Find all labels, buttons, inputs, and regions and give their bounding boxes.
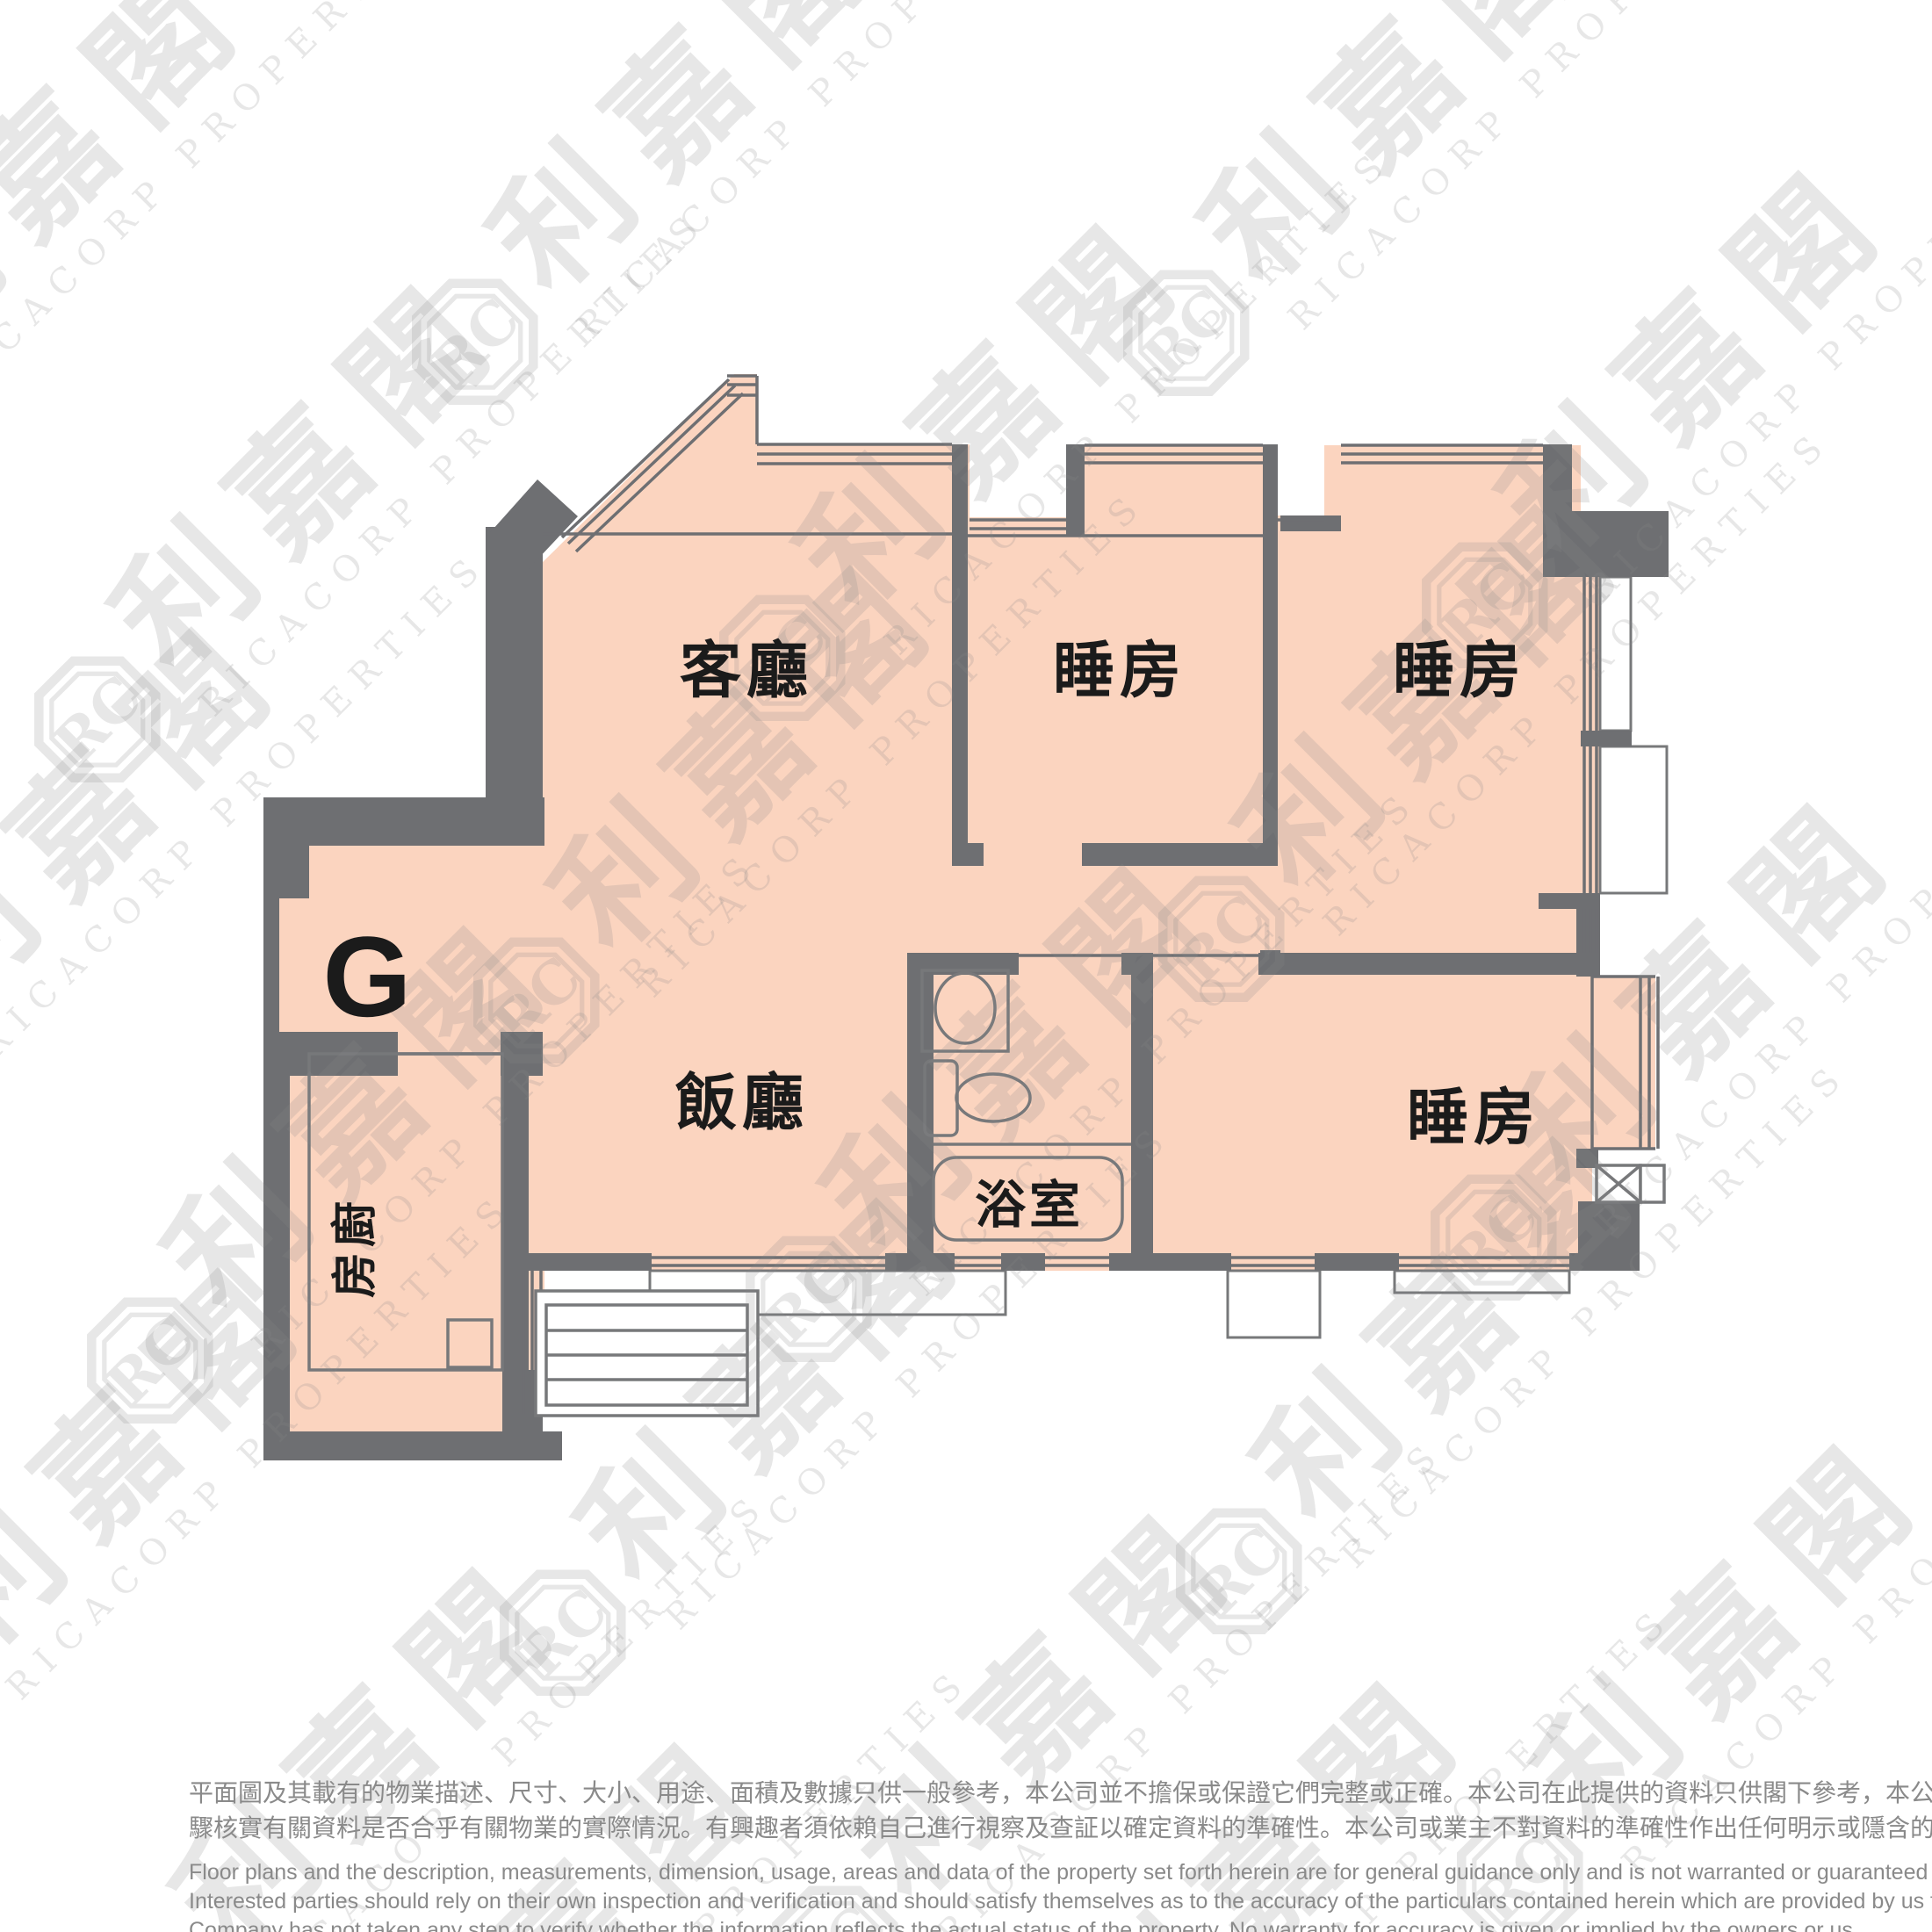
bedroom2-door-gap [1263,866,1278,950]
bed2-bed3-divider [1258,953,1581,975]
bathroom-top-cap [1121,953,1153,975]
hall-step-wall [263,797,544,846]
living-room-floor [543,374,952,866]
kitchen-top-wall-right [501,1032,543,1076]
bathroom-label: 浴室 [975,1164,1084,1237]
bed1-bed2-wall [1263,444,1278,866]
kitchen-floor [290,1054,502,1431]
bottom-window-2 [955,1253,1001,1271]
kitchen-label-char-1: 廚 [330,1201,381,1247]
ac-platform-1 [970,444,1066,517]
ac-crossbox-side [1640,1165,1664,1202]
bottom-window-1 [652,1253,885,1271]
kitchen-label: 廚 房 [333,1199,378,1301]
disclaimer-en-line3: Company has not taken any step to verify… [189,1916,1932,1932]
ac-gap1-stub [1066,444,1085,536]
disclaimer-zh-line1: 平面圖及其載有的物業描述、尺寸、大小、用途、面積及數據只供一般參考，本公司並不擔… [189,1776,1932,1811]
ledge-right-a [1600,577,1631,731]
disclaimer-block: 平面圖及其載有的物業描述、尺寸、大小、用途、面積及數據只供一般參考，本公司並不擔… [189,1776,1932,1932]
bedroom2-label: 睡房 [1393,622,1526,710]
ac-platform-2 [1276,445,1324,515]
bottom-wall-4 [1109,1253,1231,1271]
disclaimer-zh-line2: 驟核實有關資料是否合乎有關物業的實際情況。有興趣者須依賴自己進行視察及查証以確定… [189,1811,1932,1846]
ledge-bottom-b [1228,1271,1320,1337]
floor-plan-drawing [0,0,1932,1932]
unit-label: G [322,911,411,1042]
living-room-label: 客廳 [680,622,813,710]
stairs-icon [536,1291,758,1416]
bottom-wall-1 [529,1253,652,1271]
bottom-window-4 [1231,1253,1315,1271]
bottom-right-corner-wall [1578,1201,1640,1271]
bottom-wall-3 [1001,1253,1045,1271]
bottom-window-3 [1045,1253,1109,1271]
bedroom3-bay [1592,977,1655,1149]
kitchen-left-wall [263,1076,290,1460]
bed2-right-pier [1539,893,1600,909]
bottom-window-5 [1399,1253,1569,1271]
right-bay-stub [1581,731,1632,746]
bedroom1-label: 睡房 [1053,622,1186,710]
floor-plan-page: RC利嘉閣RICACORP PROPERTIESRC利嘉閣RICACORP PR… [0,0,1932,1932]
bed1-bottom-wall [1082,843,1263,866]
bathroom-left-wall [907,953,934,1253]
disclaimer-en-line2: Interested parties should rely on their … [189,1887,1932,1916]
bathroom-right-wall [1131,975,1153,1253]
kitchen-door-gap [398,1032,501,1056]
dining-room-label: 飯廳 [675,1054,809,1143]
ledge-right-b [1600,746,1667,893]
top-right-corner-wall [1543,444,1669,577]
disclaimer-en-line1: Floor plans and the description, measure… [189,1858,1932,1887]
bedroom3-label: 睡房 [1407,1069,1540,1157]
living-bed1-wall-cap [952,843,984,866]
ac-gap2-stub [1280,515,1341,531]
kitchen-label-char-2: 房 [330,1252,381,1298]
living-bed1-wall [952,444,968,843]
ledge-bottom-c [1395,1271,1569,1293]
bottom-wall-2 [885,1253,955,1271]
bottom-wall-5 [1315,1253,1399,1271]
